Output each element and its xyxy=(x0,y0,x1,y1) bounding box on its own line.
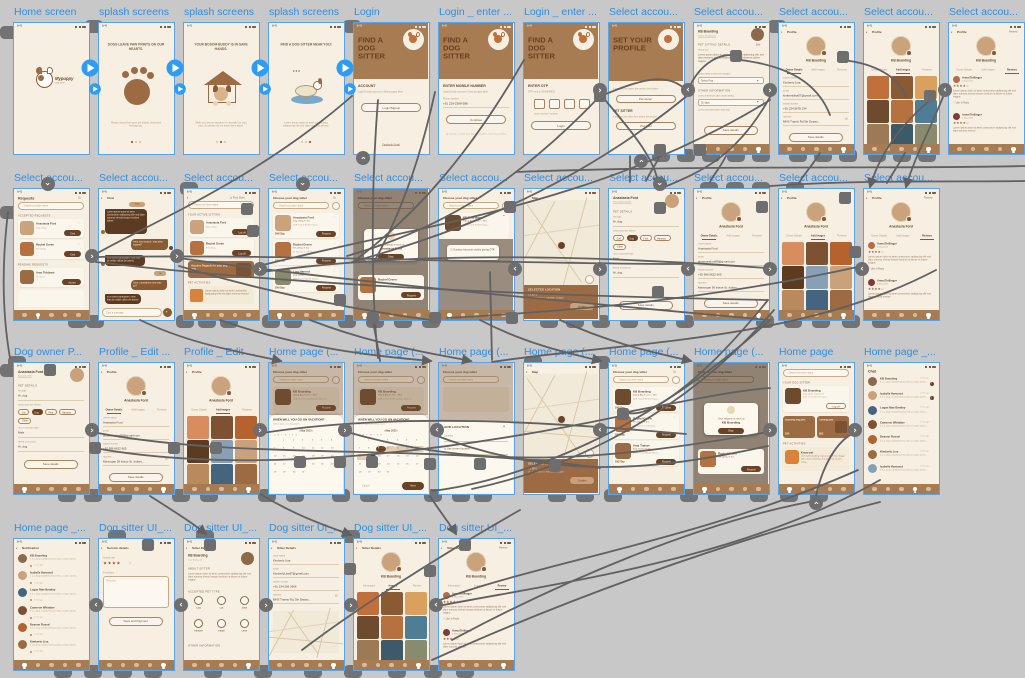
nav-search-icon xyxy=(134,663,139,668)
screen-frame-calendar[interactable]: Choose your dog sitter○ Search pet sitte… xyxy=(268,362,345,495)
battery-icon xyxy=(847,192,851,195)
status-icons xyxy=(334,192,336,194)
mini-divider xyxy=(18,437,84,438)
close-icon: × xyxy=(503,214,509,226)
mini-avatar xyxy=(387,232,395,240)
screen-frame-profileimages[interactable]: ‹ProfileAnastasia FordOwner DetailsAdd I… xyxy=(183,362,260,495)
frame-label[interactable]: splash screens xyxy=(184,6,266,20)
screen-frame-profileimages[interactable]: ‹Sitter DetailsKB BoardingInformationIma… xyxy=(353,538,430,671)
nav-search-icon xyxy=(304,313,309,318)
status-icons xyxy=(160,542,162,544)
banner-photo xyxy=(236,263,251,276)
connection-chevron-badge[interactable]: › xyxy=(809,496,823,510)
tab-add-images: Add Images xyxy=(721,234,745,244)
status-icons xyxy=(334,366,336,368)
status-icons xyxy=(160,192,162,194)
pet-type-icon xyxy=(240,596,249,605)
frame-label[interactable]: Select accou... xyxy=(524,172,606,186)
mini-avatar xyxy=(664,35,672,43)
camera-icon xyxy=(226,390,232,396)
status-time: 9:41 xyxy=(272,24,292,34)
request-button: Request xyxy=(656,432,676,438)
nav-profile-icon xyxy=(76,663,81,668)
tab-underline xyxy=(896,73,910,74)
card-photo xyxy=(700,451,716,467)
bottom-nav xyxy=(99,484,174,494)
tab-underline xyxy=(386,589,400,590)
nav-home-icon xyxy=(447,313,452,318)
mini-avatar xyxy=(18,588,27,597)
status-time: 9:41 xyxy=(187,364,207,374)
bottom-nav xyxy=(14,484,89,494)
mini-divider xyxy=(444,454,508,455)
mini-divider xyxy=(613,277,679,278)
bottom-nav xyxy=(269,310,344,320)
nav-home-icon xyxy=(702,313,707,318)
svg-text:›: › xyxy=(686,263,690,273)
frame-label[interactable]: Home page (... xyxy=(269,346,351,360)
frame-label[interactable]: Select accou... xyxy=(609,172,691,186)
nav-profile-icon xyxy=(161,487,166,492)
pet-type-icon xyxy=(217,619,226,628)
nav-requests-icon xyxy=(716,313,721,318)
nav-chat-icon xyxy=(63,487,68,492)
profile-link: Aniseed white xyxy=(18,375,58,384)
mini-avatar xyxy=(443,629,450,636)
battery-icon xyxy=(507,366,511,369)
frame-label[interactable]: splash screens xyxy=(269,6,351,20)
nav-requests-icon xyxy=(461,313,466,318)
logo-ear xyxy=(493,32,497,37)
status-icons xyxy=(670,26,672,28)
chat-preview: It is a long established fact that a rea… xyxy=(880,381,920,390)
frame-label[interactable]: Select accou... xyxy=(269,172,351,186)
status-time: 9:41 xyxy=(782,24,802,34)
frame-label[interactable]: Profile _ Edit ... xyxy=(99,346,181,360)
status-icons xyxy=(925,366,927,368)
nav-chat-icon xyxy=(63,313,68,318)
bottom-nav xyxy=(864,310,939,320)
pet-type-icon xyxy=(217,596,226,605)
svg-text:›: › xyxy=(90,252,94,262)
field-label: Location xyxy=(444,434,484,443)
screen-frame-chatlist[interactable]: ChatKB BoardingIt is a long established … xyxy=(863,362,940,495)
accept-button: Accept xyxy=(62,279,81,285)
nav-search-icon xyxy=(219,313,224,318)
mini-divider xyxy=(273,590,339,591)
save-details-button: Save details xyxy=(704,126,758,135)
banner-price: $35 xyxy=(785,432,799,442)
nav-search-icon xyxy=(814,147,819,152)
mini-avatar xyxy=(101,262,105,266)
confirm-button: Confirm xyxy=(570,477,594,484)
frame-label[interactable]: Home screen xyxy=(14,6,96,20)
status-icons xyxy=(504,542,506,544)
mini-divider xyxy=(783,112,849,113)
screen-frame-sitterabout[interactable]: ‹Sitter DetailsKB BoardingLisa Santa, 24… xyxy=(183,538,260,671)
screen-frame-chooselist[interactable]: Choose your dog sitter↻○ Search pet sitt… xyxy=(608,362,685,495)
nav-chat-icon xyxy=(913,487,918,492)
battery-icon xyxy=(507,192,511,195)
mini-divider xyxy=(273,603,339,604)
tab-reviews: Reviews xyxy=(830,68,854,78)
status-icons xyxy=(419,366,421,368)
banner-photo xyxy=(835,421,847,433)
nav-search-icon xyxy=(389,663,394,668)
figma-canvas[interactable]: Home screensplash screenssplash screenss… xyxy=(0,0,1025,678)
bottom-nav xyxy=(184,660,259,670)
frame-label[interactable]: Select accou... xyxy=(949,6,1025,20)
nav-profile-icon xyxy=(926,313,931,318)
card-photo xyxy=(615,389,631,405)
status-icons xyxy=(75,366,77,368)
frame-label[interactable]: Login _ enter ... xyxy=(524,6,606,20)
search-placeholder: ○ Search pet sitter name xyxy=(192,203,250,212)
status-icons xyxy=(79,192,81,194)
screen-frame-petdetails[interactable]: Anastasia FordAniseed whitePET DETAILSPe… xyxy=(13,362,90,495)
frame-label[interactable]: Select accou... xyxy=(694,172,776,186)
battery-icon xyxy=(1017,26,1021,29)
sleep-zzz: z z z xyxy=(293,69,313,82)
screen-frame-splash[interactable]: DOGS LEAVE PAW PRINTS ON OUR HEARTS.Plea… xyxy=(98,22,175,155)
frame-label[interactable]: Home page (... xyxy=(524,346,606,360)
screen-frame-profileimages[interactable]: ‹ProfileAnastasia FordOwner DetailsAdd I… xyxy=(778,188,855,321)
select-value: Select Pup xyxy=(701,79,757,89)
frame-label[interactable]: Home page xyxy=(779,346,861,360)
frame-label[interactable]: splash screens xyxy=(99,6,181,20)
frame-label[interactable]: Home page (... xyxy=(439,346,521,360)
next-button: Next xyxy=(402,482,424,490)
bottom-nav xyxy=(99,660,174,670)
card-price: 200/ Day xyxy=(275,286,295,295)
battery-icon xyxy=(762,366,766,369)
nav-chat-icon xyxy=(403,313,408,318)
screen-frame-login[interactable]: FIND A DOG SITTERENTER OTPOTP sent to 92… xyxy=(523,22,600,155)
screen-frame-login[interactable]: FIND A DOG SITTERENTER MOBILE NUMBERLogi… xyxy=(438,22,515,155)
card-photo xyxy=(785,388,801,404)
status-time: 9:41 xyxy=(782,190,802,200)
status-icons xyxy=(330,542,332,544)
otp-box xyxy=(549,99,560,109)
nav-home-icon xyxy=(192,313,197,318)
status-time: 9:41 xyxy=(867,364,887,374)
screen-frame-chooselist[interactable]: Choose your dog sitter↻○ Search pet sitt… xyxy=(268,188,345,321)
nav-requests-icon xyxy=(631,487,636,492)
tab-add-images: Add Images xyxy=(806,68,830,78)
frame-label[interactable]: Select accou... xyxy=(779,6,861,20)
pet-type-label: Cat xyxy=(211,607,232,616)
nav-search-icon xyxy=(899,487,904,492)
nav-requests-icon xyxy=(121,487,126,492)
gallery-photo xyxy=(381,592,404,615)
logo-ear xyxy=(408,32,412,37)
status-icons xyxy=(674,26,676,28)
status-icons xyxy=(415,26,417,28)
connection-chevron-badge[interactable]: › xyxy=(634,154,648,168)
notif-dot xyxy=(30,565,32,567)
status-icons xyxy=(160,26,162,28)
mini-avatar xyxy=(868,464,877,473)
screen-frame-requests[interactable]: Requests↻○ Search pet sitter nameACCEPTE… xyxy=(13,188,90,321)
mini-divider xyxy=(103,439,169,440)
bottom-nav xyxy=(269,660,344,670)
screen-frame-calendar[interactable]: Choose your dog sitter○ Search pet sitte… xyxy=(353,362,430,495)
screen-frame-profileimages[interactable]: ‹ProfileKB BoardingOwner DetailsAdd Imag… xyxy=(863,22,940,155)
calendar-day: 27 xyxy=(416,463,423,472)
status-icons xyxy=(419,26,421,28)
screen-frame-map[interactable]: ‹MapSELECTED LOCATIONTS EPS56, Aelywood … xyxy=(523,188,600,321)
status-icons xyxy=(419,192,421,194)
gallery-photo xyxy=(187,416,210,439)
pet-type-label: Hamster xyxy=(188,630,209,639)
mini-avatar xyxy=(18,623,27,632)
frame-label[interactable]: Dog sitter UI_... xyxy=(439,522,521,536)
frame-label[interactable]: Login xyxy=(354,6,436,20)
camera-icon xyxy=(991,50,997,56)
screen-frame-profilereviews[interactable]: ‹ProfileReviewKB BoardingOwner DetailsAd… xyxy=(948,22,1025,155)
status-icons xyxy=(929,26,931,28)
frame-label[interactable]: Home page (... xyxy=(609,346,691,360)
screen-frame-addlocation[interactable]: Choose your dog sitter○ Search pet sitte… xyxy=(438,362,515,495)
battery-icon xyxy=(252,192,256,195)
status-icons xyxy=(755,192,757,194)
screen-frame-requestsent[interactable]: Choose your dog sitter○ Search pet sitte… xyxy=(693,362,770,495)
status-icons xyxy=(1014,26,1016,28)
tab-underline xyxy=(107,413,121,414)
status-icons xyxy=(75,192,77,194)
card-photo xyxy=(20,270,34,284)
mini-avatar xyxy=(868,450,877,459)
logo-ear xyxy=(416,32,420,37)
gallery-photo xyxy=(235,416,258,439)
card-photo xyxy=(190,220,204,234)
screen-frame-profileform[interactable]: ‹ProfileKB BoardingOwner DetailsAdd Imag… xyxy=(778,22,855,155)
nav-profile-icon xyxy=(246,313,251,318)
unread-badge: 1 xyxy=(931,397,934,405)
status-time: 9:41 xyxy=(612,190,632,200)
nav-requests-icon xyxy=(376,313,381,318)
status-icons xyxy=(504,192,506,194)
locate-button xyxy=(585,449,594,458)
status-icons xyxy=(249,366,251,368)
status-icons xyxy=(500,542,502,544)
status-icons xyxy=(589,366,591,368)
screen-frame-setprofile[interactable]: SET YOUR PROFILEIf you are pet owner the… xyxy=(608,22,685,155)
nav-search-icon xyxy=(49,663,54,668)
frame-label[interactable]: Select accou... xyxy=(439,172,521,186)
frame-label[interactable]: Dog owner P... xyxy=(14,346,96,360)
nav-search-icon xyxy=(814,487,819,492)
screen-frame-profilereviews[interactable]: ‹ProfileReviewAnastasia FordOwner Detail… xyxy=(863,188,940,321)
nav-search-icon xyxy=(899,313,904,318)
nav-home-icon xyxy=(702,487,707,492)
screen-frame-map[interactable]: ‹MapSELECTED LOCATIONTS EPS56, Aelywood … xyxy=(523,362,600,495)
frame-label[interactable]: Login _ enter ... xyxy=(439,6,521,20)
screen-frame-sittercontact[interactable]: ‹Sitter DetailsSitter NameKimberly LisaE… xyxy=(268,538,345,671)
frame-label[interactable]: Select accou... xyxy=(609,6,691,20)
frame-label[interactable]: Select accou... xyxy=(779,172,861,186)
screen-frame-profilereviews[interactable]: ‹Sitter DetailsReviewKB BoardingInformat… xyxy=(438,538,515,671)
frame-label[interactable]: Select accou... xyxy=(864,172,946,186)
map-pin xyxy=(557,415,566,424)
screen-frame-splash[interactable]: YOUR BOSOM BUDDY IS IN SAFE HANDS.While … xyxy=(183,22,260,155)
status-icons xyxy=(334,26,336,28)
status-icons xyxy=(840,192,842,194)
nav-chat-icon xyxy=(828,147,833,152)
frame-label[interactable]: Dog sitter UI_... xyxy=(99,522,181,536)
location-icon: ◎ xyxy=(845,117,851,129)
favorite-icon: ♡ xyxy=(673,389,679,401)
mini-divider xyxy=(698,265,764,266)
okay-button: Okay xyxy=(378,254,404,260)
bottom-nav xyxy=(354,310,429,320)
nav-search-icon xyxy=(134,487,139,492)
confirm-button: Confirm xyxy=(570,303,594,310)
filter-icon xyxy=(672,376,680,384)
section-subtitle: Login/Create account to find a puppy sit… xyxy=(358,90,424,99)
screen-frame-sitterhome[interactable]: /◎ Find Sitter○ Search pet sitter nameYO… xyxy=(183,188,260,321)
nav-requests-icon xyxy=(886,313,891,318)
mini-divider xyxy=(783,125,849,126)
nav-home-icon xyxy=(787,147,792,152)
battery-icon xyxy=(677,192,681,195)
status-time: 9:41 xyxy=(187,190,207,200)
mini-avatar xyxy=(18,554,27,563)
nav-search-icon xyxy=(389,313,394,318)
screen-frame-login[interactable]: FIND A DOG SITTERACCOUNTLogin/Create acc… xyxy=(353,22,430,155)
save-payment-button: Save and Payment xyxy=(109,617,163,626)
nav-home-icon xyxy=(192,487,197,492)
screen-frame-chat[interactable]: ‹ChatTodayLorem ipsum dolor sit amet con… xyxy=(98,188,175,321)
gallery-photo xyxy=(211,440,234,463)
status-icons xyxy=(249,26,251,28)
review-link: Review xyxy=(924,196,938,206)
frame-label[interactable]: Dog sitter UI_... xyxy=(354,522,436,536)
frame-label[interactable]: Dog sitter UI_... xyxy=(269,522,351,536)
nav-profile-icon xyxy=(756,147,761,152)
frame-label[interactable]: Select accou... xyxy=(354,172,436,186)
screen-frame-sitterform[interactable]: KB BoardingLorem Profile linksPET SITTIN… xyxy=(693,22,770,155)
card-photo xyxy=(20,242,34,256)
pet-owner-button: Pet owner xyxy=(616,95,676,103)
card-price: 200/ Day xyxy=(615,460,635,469)
calendar-day: 26 xyxy=(321,463,328,472)
frame-label[interactable]: Home page _... xyxy=(14,522,96,536)
frame-label[interactable]: Select accou... xyxy=(99,172,181,186)
app-subtitle: Dog sitter xyxy=(55,82,85,91)
battery-icon xyxy=(592,26,596,29)
gallery-photo xyxy=(806,266,829,289)
splash-caption: Lorem ipsum dolor sit amet consectetur s… xyxy=(279,121,333,141)
frame-label[interactable]: Home page _... xyxy=(864,346,946,360)
nav-requests-icon xyxy=(716,147,721,152)
status-icons xyxy=(925,26,927,28)
svg-text:›: › xyxy=(359,156,369,160)
frame-label[interactable]: Select accou... xyxy=(14,172,96,186)
screen-frame-splash[interactable]: FIND A DOG SITTER NEAR YOU!z z zLorem ip… xyxy=(268,22,345,155)
nav-profile-icon xyxy=(416,313,421,318)
nav-chat-icon xyxy=(743,147,748,152)
screen-frame-requestsent[interactable]: Choose your dog sitter○ Search pet sitte… xyxy=(353,188,430,321)
gallery-photo xyxy=(782,266,805,289)
tab-underline xyxy=(787,73,801,74)
like-reply: ♡ Like ⟲ Reply xyxy=(953,102,993,111)
status-time: 9:41 xyxy=(442,190,462,200)
nav-requests-icon xyxy=(801,487,806,492)
nav-profile-icon xyxy=(331,313,336,318)
nav-requests-icon xyxy=(291,313,296,318)
tab-underline xyxy=(1005,73,1019,74)
field-label: Select best area after selecting xyxy=(698,109,764,118)
mini-avatar xyxy=(953,113,960,120)
battery-icon xyxy=(762,26,766,29)
mini-divider xyxy=(698,278,764,279)
frame-label[interactable]: Select accou... xyxy=(864,6,946,20)
status-time: 9:41 xyxy=(357,364,377,374)
nav-chat-icon xyxy=(743,487,748,492)
frame-label[interactable]: Select accou... xyxy=(694,6,776,20)
page-dot xyxy=(139,141,141,143)
frame-label[interactable]: Home page (... xyxy=(354,346,436,360)
screen-frame-profileform[interactable]: ‹ProfileAnastasia FordOwner DetailsAdd I… xyxy=(98,362,175,495)
pet-sitter-button: Pet sitter xyxy=(616,122,676,130)
nav-requests-icon xyxy=(886,147,891,152)
gallery-photo xyxy=(867,100,890,123)
status-icons xyxy=(164,366,166,368)
mini-avatar xyxy=(868,420,877,429)
status-time: 9:41 xyxy=(17,190,37,200)
status-icons xyxy=(415,366,417,368)
mini-divider xyxy=(698,252,764,253)
camera-icon xyxy=(821,50,827,56)
bottom-nav xyxy=(694,144,769,154)
screen-frame-notification[interactable]: ‹NotificationKB BoardingIt is a long est… xyxy=(13,538,90,671)
status-icons xyxy=(840,26,842,28)
bottom-nav xyxy=(439,660,514,670)
calendar-day: 25 xyxy=(397,463,404,472)
svg-text:›: › xyxy=(90,426,94,436)
svg-text:›: › xyxy=(812,501,822,505)
status-time: 9:41 xyxy=(102,190,122,200)
gallery-photo xyxy=(211,416,234,439)
bottom-nav xyxy=(779,310,854,320)
calendar-day: 27 xyxy=(331,463,338,472)
frame-label[interactable]: Home page (... xyxy=(694,346,776,360)
frame-label[interactable]: Profile _ Edit ... xyxy=(184,346,266,360)
bottom-nav xyxy=(694,484,769,494)
tab-underline xyxy=(495,589,509,590)
status-icons xyxy=(330,366,332,368)
chat-preview: It is a long established fact that a rea… xyxy=(880,396,920,405)
screen-frame-profileform[interactable]: ‹ProfileAnastasia FordOwner DetailsAdd I… xyxy=(693,188,770,321)
status-icons xyxy=(245,192,247,194)
frame-label[interactable]: Dog sitter UI_... xyxy=(184,522,266,536)
page-dot xyxy=(224,141,226,143)
logo-ear xyxy=(578,32,582,37)
status-icons xyxy=(249,192,251,194)
battery-icon xyxy=(82,26,86,29)
mini-avatar xyxy=(18,640,27,649)
screen-frame-service[interactable]: ‹Service detailsActual rate★★★★☆Feedback… xyxy=(98,538,175,671)
tab-reviews: Reviews xyxy=(745,234,769,244)
screen-frame-logo[interactable]: MypuppyDog sitter9:41 xyxy=(13,22,90,155)
screen-frame-choosetooltip[interactable]: Choose your dog sitter○ Search pet sitte… xyxy=(438,188,515,321)
frame-label[interactable]: Select accou... xyxy=(184,172,266,186)
mini-avatar xyxy=(868,377,877,386)
status-time: 9:41 xyxy=(782,364,802,374)
screen-frame-sitterhome2[interactable]: ○ Search pet sitter nameYOUR DOG SITTERK… xyxy=(778,362,855,495)
screen-frame-petdetails[interactable]: Anastasia FordView Sathre profilePET DET… xyxy=(608,188,685,321)
